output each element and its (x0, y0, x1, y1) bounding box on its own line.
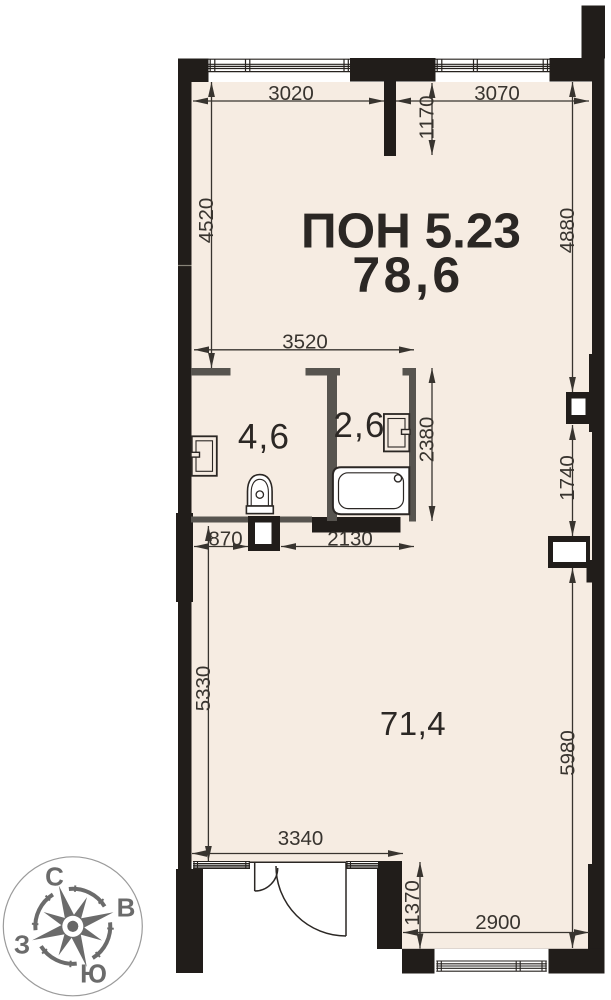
svg-text:3020: 3020 (268, 82, 314, 105)
svg-text:2,6: 2,6 (333, 406, 385, 445)
svg-text:1170: 1170 (416, 95, 439, 139)
svg-text:3340: 3340 (278, 827, 324, 850)
svg-text:В: В (117, 893, 136, 923)
svg-text:1370: 1370 (401, 880, 424, 926)
svg-text:5330: 5330 (192, 666, 215, 712)
svg-text:870: 870 (208, 528, 242, 551)
svg-text:З: З (14, 930, 30, 960)
svg-text:78,6: 78,6 (352, 247, 463, 303)
svg-text:С: С (45, 862, 64, 892)
svg-text:2900: 2900 (475, 911, 521, 934)
svg-text:4,6: 4,6 (238, 418, 290, 457)
svg-text:Ю: Ю (80, 959, 107, 989)
svg-text:4520: 4520 (195, 198, 218, 244)
svg-text:71,4: 71,4 (380, 705, 446, 742)
svg-text:4880: 4880 (556, 208, 579, 254)
svg-text:2130: 2130 (327, 528, 373, 551)
svg-text:1740: 1740 (556, 455, 579, 501)
svg-text:5980: 5980 (557, 730, 580, 776)
svg-text:3520: 3520 (282, 331, 328, 354)
svg-text:3070: 3070 (474, 82, 520, 105)
svg-text:2380: 2380 (416, 417, 439, 463)
